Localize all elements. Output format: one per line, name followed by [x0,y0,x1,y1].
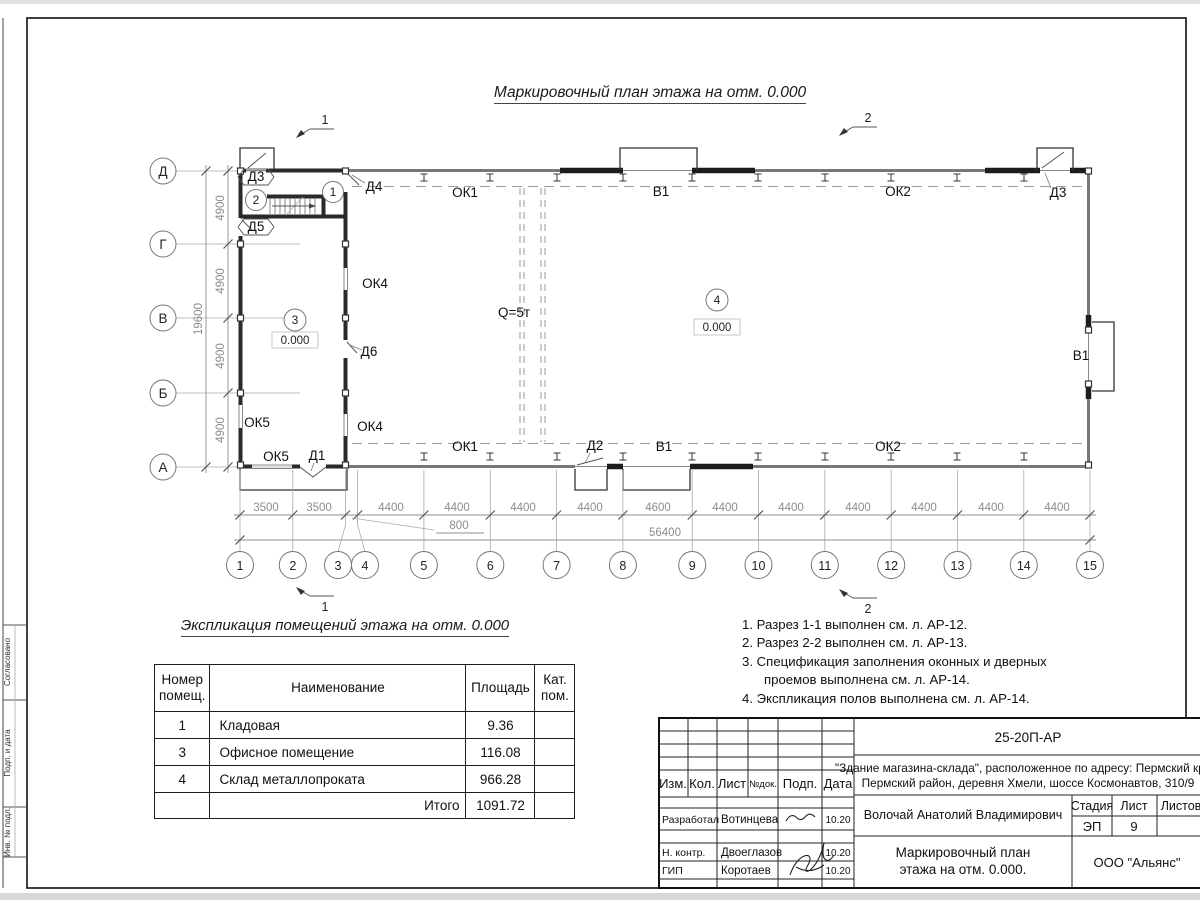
expl-row1-cat [535,712,575,739]
expl-row3-cat [535,766,575,793]
label-ok1-bottom: ОК1 [452,439,478,454]
axis-letter-a: А [158,460,167,475]
note-line: 4. Экспликация полов выполнена см. л. АР… [742,690,1072,708]
room-2-marker: 2 [253,193,260,207]
note-line: 1. Разрез 1-1 выполнен см. л. АР-12. [742,616,1072,634]
room-4-marker: 4 [714,293,721,307]
tb-doc-number: 25-20П-АР [995,730,1062,745]
column-axis-bubbles: 1 2 3 4 5 6 7 8 9 10 11 12 13 14 15 [227,552,1104,579]
room-3-level: 0.000 [281,335,310,347]
window-symbols [239,268,348,469]
label-ok4-upper: ОК4 [362,276,388,291]
label-crane-capacity: Q=5т [498,305,530,320]
label-v1-top: В1 [653,184,670,199]
glazing-lines [352,187,1086,444]
dim-1: 3500 [253,502,279,514]
dim-3: 4400 [378,502,404,514]
table-row: 4 Склад металлопроката 966.28 [155,766,575,793]
dim-5: 4400 [510,502,536,514]
grid-15: 15 [1083,559,1097,573]
stairs [270,197,316,215]
expl-header-name: Наименование [210,665,466,712]
note-line: проемов выполнена см. л. АР-14. [742,671,1072,689]
expl-row2-name: Офисное помещение [210,739,466,766]
grid-12: 12 [884,559,898,573]
section-2-bottom: 2 [865,602,872,616]
dim-13: 4400 [1044,502,1070,514]
explication-table: Номер помещ. Наименование Площадь Кат. п… [154,664,575,819]
label-ok5-lower: ОК5 [263,449,289,464]
axis-letter-d: Д [158,164,167,179]
tb-role-gip: ГИП [662,865,683,877]
dim-left-1: 4900 [215,195,227,221]
expl-total-empty [155,793,210,819]
sheet-title: Маркировочный план этажа на отм. 0.000 [400,84,900,102]
expl-header-num: Номер помещ. [155,665,210,712]
room-markers: Д3 2 1 Д4 Д5 ОК4 3 0.000 Д6 ОК5 ОК5 Д1 О… [238,169,1089,471]
tb-col-izm: Изм. [659,776,687,791]
label-d4: Д4 [366,179,383,194]
label-v1-right: В1 [1073,348,1090,363]
drawing-sheet: { "sheet": { "title": "Маркировочный пла… [0,0,1200,900]
section-1-top: 1 [322,113,329,127]
dim-7: 4600 [645,502,671,514]
grid-8: 8 [619,559,626,573]
grid-11: 11 [818,559,831,573]
tb-object-line2: Пермский район, деревня Хмели, шоссе Кос… [862,776,1195,790]
tb-date-gip: 10.20 [825,866,850,877]
dim-11: 4400 [911,502,937,514]
tb-company: ООО "Альянс" [1094,855,1181,870]
title-block: Изм. Кол. Лист №док. Подп. Дата Разработ… [658,717,1200,889]
tb-date-developed: 10.20 [825,815,850,826]
dim-8: 4400 [712,502,738,514]
expl-row2-cat [535,739,575,766]
side-stamp-strip: Согласовано Подп. и дата Инв. № подл. [3,625,27,857]
label-d2: Д2 [587,438,604,453]
axis-letter-g: Г [159,237,167,252]
side-label-approved: Согласовано [3,637,12,686]
room-1-marker: 1 [330,185,337,199]
dim-12: 4400 [978,502,1004,514]
tb-name-ncontrol: Двоеглазов [721,847,782,859]
expl-row3-name: Склад металлопроката [210,766,466,793]
grid-5: 5 [420,559,427,573]
dim-10: 4400 [845,502,871,514]
porches [240,148,1114,490]
expl-row2-num: 3 [155,739,210,766]
grid-7: 7 [553,559,560,573]
label-d1: Д1 [309,448,326,463]
note-line: 3. Спецификация заполнения оконных и две… [742,653,1072,671]
dim-total: 56400 [649,527,681,539]
expl-row3-num: 4 [155,766,210,793]
section-1-bottom: 1 [322,600,329,614]
left-dimensions: 4900 4900 4900 4900 19600 [193,165,233,473]
label-d5: Д5 [248,219,265,234]
tb-title-line1: Маркировочный план [896,845,1031,860]
table-row: 1 Кладовая 9.36 [155,712,575,739]
label-ok1-top: ОК1 [452,185,478,200]
tb-approver: Волочай Анатолий Владимирович [864,808,1062,822]
label-d3-left: Д3 [248,169,265,184]
table-total-row: Итого 1091.72 [155,793,575,819]
dim-4: 4400 [444,502,470,514]
room-4-level: 0.000 [703,322,732,334]
grid-13: 13 [951,559,965,573]
tb-role-developed: Разработал [662,814,719,826]
dim-left-4: 4900 [215,417,227,443]
grid-2: 2 [289,559,296,573]
room-3-marker: 3 [292,313,299,327]
grid-14: 14 [1017,559,1031,573]
expl-total-value: 1091.72 [466,793,535,819]
tb-object-line1: "Здание магазина-склада", расположенное … [835,761,1200,775]
tb-sheets-label: Листов [1161,799,1200,813]
note-line: 2. Разрез 2-2 выполнен см. л. АР-13. [742,634,1072,652]
dim-left-2: 4900 [215,268,227,294]
tb-col-podp: Подп. [783,776,818,791]
dim-800: 800 [449,520,468,532]
dim-2: 3500 [306,502,332,514]
label-d6: Д6 [361,344,378,359]
notes-block: 1. Разрез 1-1 выполнен см. л. АР-12. 2. … [742,616,1072,708]
tb-name-gip: Коротаев [721,865,771,877]
grid-9: 9 [689,559,696,573]
tb-stage-value: ЭП [1083,819,1102,834]
expl-header-cat: Кат. пом. [535,665,575,712]
tb-name-developed: Вотинцева [721,814,779,826]
table-row: 3 Офисное помещение 116.08 [155,739,575,766]
dim-left-total: 19600 [193,303,205,335]
tb-stage-label: Стадия [1071,799,1114,813]
label-ok2-top: ОК2 [885,184,911,199]
label-ok2-bottom: ОК2 [875,439,901,454]
dim-6: 4400 [577,502,603,514]
expl-row1-num: 1 [155,712,210,739]
grid-4: 4 [362,559,369,573]
tb-col-ndoc: №док. [749,779,777,790]
label-ok5-upper: ОК5 [244,415,270,430]
grid-3: 3 [335,559,342,573]
expl-row1-area: 9.36 [466,712,535,739]
tb-sheet-value: 9 [1130,819,1137,834]
bottom-dimensions: 3500 3500 4400 4400 4400 4400 4600 4400 … [234,470,1096,552]
side-label-sign-date: Подп. и дата [3,729,12,777]
dim-9: 4400 [778,502,804,514]
dim-left-3: 4900 [215,343,227,369]
section-2-top: 2 [865,111,872,125]
tb-role-ncontrol: Н. контр. [662,847,705,859]
expl-header-area: Площадь [466,665,535,712]
tb-col-data: Дата [824,776,854,791]
tb-col-kol: Кол. [689,776,715,791]
grid-1: 1 [237,559,244,573]
explication-title: Экспликация помещений этажа на отм. 0.00… [150,617,540,634]
grid-6: 6 [487,559,494,573]
expl-row1-name: Кладовая [210,712,466,739]
axis-letter-v: В [158,311,167,326]
expl-row3-area: 966.28 [466,766,535,793]
tb-date-ncontrol: 10.20 [825,848,850,859]
expl-row2-area: 116.08 [466,739,535,766]
tb-sheet-label: Лист [1120,799,1147,813]
tb-col-list: Лист [718,776,746,791]
label-v1-bottom: В1 [656,439,673,454]
tb-title-line2: этажа на отм. 0.000. [900,862,1027,877]
label-d3-right: Д3 [1050,185,1067,200]
side-label-inv-num: Инв. № подл. [3,807,12,857]
axis-letter-b: Б [159,386,168,401]
grid-10: 10 [752,559,766,573]
label-ok4-lower: ОК4 [357,419,383,434]
expl-total-label: Итого [210,793,466,819]
expl-total-cat [535,793,575,819]
